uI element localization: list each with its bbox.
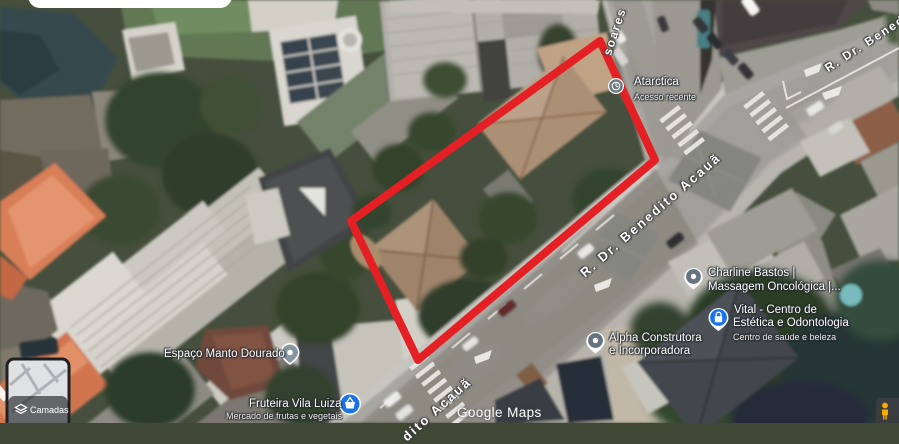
svg-text:Camadas: Camadas [30, 405, 69, 415]
